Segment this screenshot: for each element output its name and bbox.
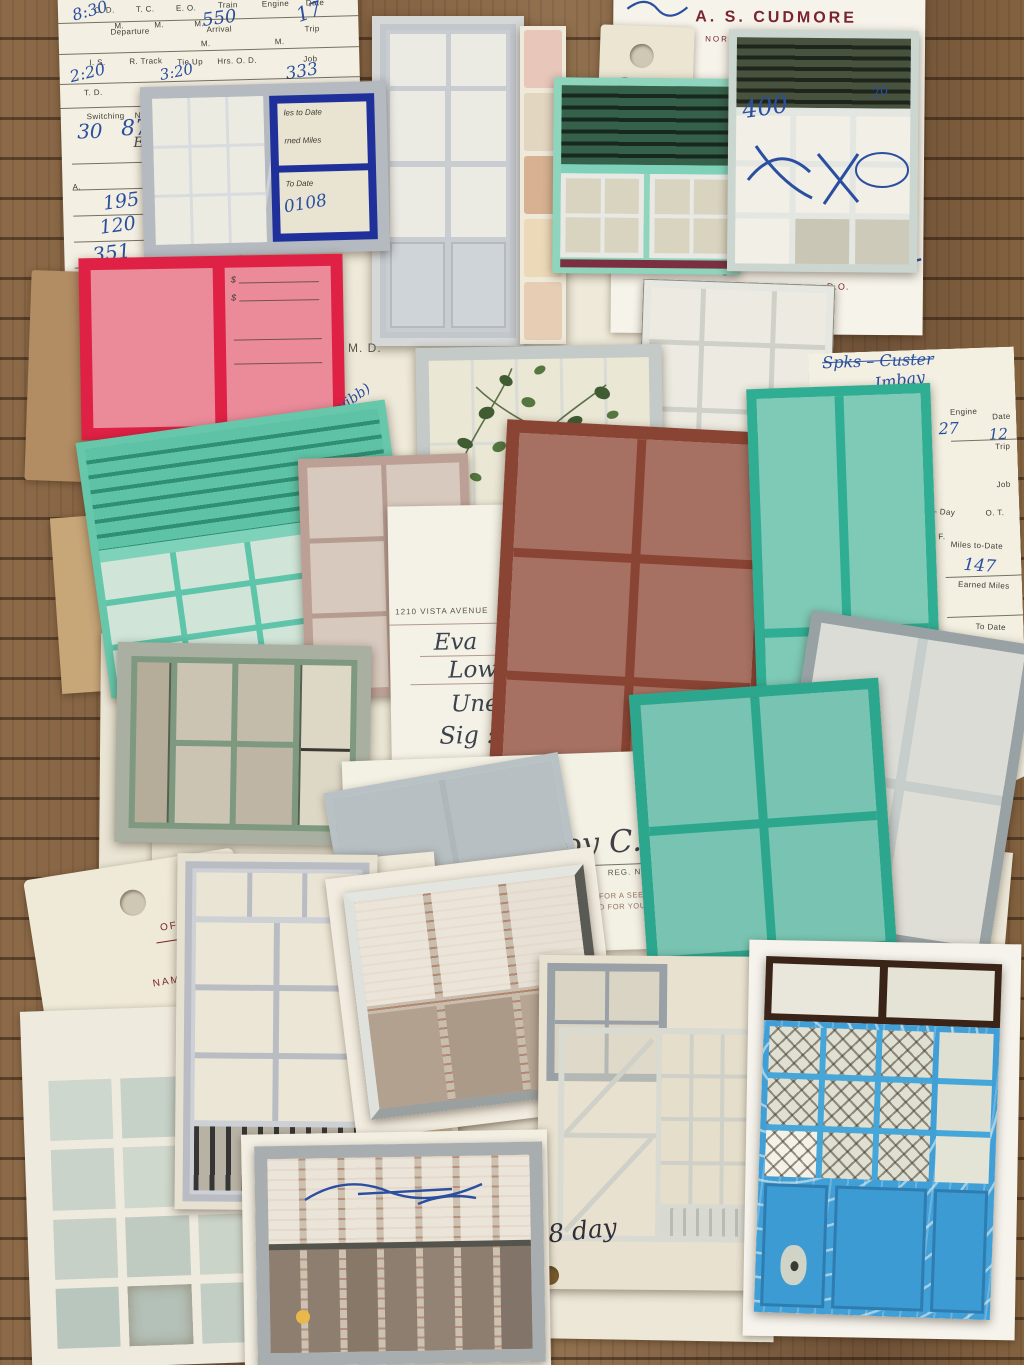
window-pane bbox=[451, 34, 507, 86]
window-pane bbox=[310, 541, 386, 614]
form-label: Engine bbox=[262, 0, 290, 9]
window-pane bbox=[430, 885, 511, 997]
window-pane bbox=[267, 1159, 302, 1354]
lattice-pane bbox=[766, 1078, 818, 1126]
handwritten-20: 20 bbox=[871, 84, 890, 100]
window-pane bbox=[191, 147, 227, 195]
window-pane bbox=[451, 167, 506, 237]
window-pane bbox=[661, 1121, 689, 1161]
rule-line bbox=[239, 281, 319, 283]
window-pane bbox=[795, 218, 849, 264]
window-pane bbox=[604, 179, 639, 214]
form-label: Trip bbox=[304, 25, 319, 33]
form-label: M. bbox=[275, 38, 285, 46]
form-label: Miles to-Date bbox=[951, 541, 1004, 551]
window-pane bbox=[252, 873, 303, 917]
rule-line bbox=[946, 574, 1022, 578]
rule-line bbox=[234, 338, 322, 341]
window-pane bbox=[514, 433, 637, 554]
lattice-pane bbox=[881, 1030, 933, 1078]
form-label: To Date bbox=[975, 623, 1006, 632]
form-label: Engine bbox=[950, 408, 978, 417]
green-shutter-window bbox=[552, 77, 742, 275]
lattice-pane bbox=[821, 1132, 873, 1180]
form-fragment: rned Miles bbox=[284, 137, 321, 146]
window-pane bbox=[278, 1059, 357, 1122]
address: 1210 VISTA AVENUE bbox=[395, 607, 488, 617]
marble-tile bbox=[51, 1148, 116, 1210]
window-pane bbox=[152, 98, 188, 146]
window-pane bbox=[229, 146, 265, 194]
window-pane bbox=[692, 1121, 720, 1161]
handwritten-400: 400 bbox=[741, 92, 790, 122]
punched-hole bbox=[118, 888, 148, 918]
roller-shutter bbox=[561, 85, 734, 166]
slat-panel bbox=[660, 1204, 751, 1237]
window-pane bbox=[195, 990, 274, 1053]
window-pane bbox=[228, 96, 264, 144]
form-label: Earned Miles bbox=[958, 581, 1010, 591]
window-pane bbox=[936, 1084, 992, 1132]
window-pane bbox=[390, 167, 445, 237]
handwritten-time: 8:30 bbox=[70, 0, 109, 24]
window-pane bbox=[661, 1034, 689, 1074]
form-label: A. bbox=[72, 183, 81, 191]
window-pane bbox=[155, 197, 191, 245]
transom bbox=[764, 956, 1002, 1028]
window-pane bbox=[693, 1078, 721, 1118]
handwritten-number: 195 bbox=[102, 190, 140, 214]
dollar-label: $ bbox=[231, 294, 236, 303]
window-pane bbox=[757, 396, 842, 628]
window-pane bbox=[451, 91, 506, 161]
handwritten-0108: 0108 bbox=[283, 192, 328, 216]
window-pane bbox=[693, 218, 728, 253]
window-pane bbox=[855, 219, 909, 265]
window-pane bbox=[444, 997, 524, 1100]
window-pane bbox=[655, 179, 690, 214]
rule-line bbox=[947, 614, 1023, 618]
window-pane bbox=[565, 217, 600, 252]
form-label: T. C. bbox=[136, 5, 155, 13]
window-pane: les to Date rned Miles bbox=[277, 101, 367, 165]
dollar-label: $ bbox=[231, 276, 236, 285]
window-pane bbox=[735, 218, 789, 264]
form-label: O. T. bbox=[985, 509, 1004, 518]
window-pane bbox=[650, 828, 768, 957]
window-pane bbox=[938, 1032, 994, 1080]
window-pane bbox=[705, 289, 772, 343]
marble-tile bbox=[56, 1286, 121, 1348]
lattice-pane bbox=[765, 1130, 817, 1178]
form-fragment: les to Date bbox=[284, 108, 322, 117]
lattice-pane bbox=[880, 1082, 932, 1130]
window-pane bbox=[934, 1136, 990, 1184]
lattice-pane bbox=[823, 1080, 875, 1128]
marble-tile bbox=[128, 1284, 193, 1346]
open-frame-half bbox=[563, 1033, 657, 1236]
window-pane bbox=[661, 1077, 689, 1117]
window-pane bbox=[759, 689, 877, 818]
yellow-dot-sticker bbox=[296, 1310, 310, 1324]
handwritten-number: 120 bbox=[99, 214, 137, 238]
door-lower-panels bbox=[390, 242, 506, 328]
window-pane bbox=[640, 439, 763, 560]
window-pane bbox=[390, 91, 445, 161]
window-pane bbox=[498, 1155, 533, 1350]
form-label: Arrival bbox=[206, 25, 232, 34]
brick-tile bbox=[524, 282, 562, 340]
letterhead-name: A. S. CUDMORE bbox=[695, 9, 857, 26]
window-pane bbox=[193, 196, 229, 244]
window-pane bbox=[566, 178, 601, 213]
rule-line bbox=[234, 362, 322, 365]
window-pane: To Date 0108 bbox=[279, 170, 369, 234]
window-pane bbox=[135, 662, 172, 823]
side-lights bbox=[934, 1032, 993, 1184]
form-label: M. bbox=[154, 21, 164, 29]
window-pane bbox=[768, 820, 886, 949]
punched-hole bbox=[629, 43, 654, 68]
door-body bbox=[754, 1020, 1000, 1320]
window-pane bbox=[153, 148, 189, 196]
door-glazing bbox=[390, 91, 506, 237]
door-panel bbox=[930, 1189, 988, 1314]
window-pane bbox=[390, 34, 446, 86]
window-pane bbox=[633, 563, 756, 684]
window-pane bbox=[882, 791, 1001, 948]
window-pane bbox=[231, 195, 267, 243]
lattice-pane bbox=[825, 1028, 877, 1076]
door-transom bbox=[390, 34, 506, 86]
window-pane bbox=[196, 872, 247, 916]
left-sash bbox=[152, 96, 267, 245]
window-pane bbox=[654, 218, 689, 253]
window-pane: $ $ bbox=[225, 266, 334, 426]
form-label: F. bbox=[938, 533, 945, 541]
window-pane bbox=[175, 542, 249, 590]
handwritten-8day: 8 day bbox=[547, 1214, 618, 1246]
handwritten-value: 2:20 bbox=[68, 61, 107, 85]
window-pane bbox=[609, 971, 659, 1020]
window-pane bbox=[176, 663, 233, 741]
window-pane bbox=[368, 1006, 448, 1109]
handwritten-value: 27 bbox=[938, 421, 959, 438]
form-label: Date bbox=[992, 413, 1011, 422]
form-label: Hrs. O. D. bbox=[217, 57, 257, 66]
window-pane bbox=[640, 698, 758, 827]
window-pane bbox=[237, 664, 294, 742]
window-pane bbox=[190, 97, 226, 145]
form-label: M. bbox=[201, 40, 211, 48]
casement-pair bbox=[560, 173, 733, 258]
lattice-glazing bbox=[765, 1026, 934, 1182]
white-door-photo bbox=[372, 16, 524, 346]
marble-tile bbox=[48, 1079, 113, 1141]
window-pane bbox=[906, 640, 1024, 797]
handwritten-date: 17 bbox=[293, 0, 324, 25]
marble-tile bbox=[53, 1217, 118, 1279]
window-sill bbox=[560, 259, 732, 269]
teal-four-pane-window bbox=[629, 678, 898, 969]
form-label: T. D. bbox=[84, 89, 103, 97]
window-pane bbox=[843, 393, 928, 625]
window-pane bbox=[604, 218, 639, 253]
photo-scene: O. D. T. C. E. O. Train Engine Date 8:30… bbox=[0, 0, 1024, 1365]
md-fragment: M. D. bbox=[348, 342, 382, 354]
window-pane bbox=[354, 894, 435, 1006]
transom-pane bbox=[886, 967, 995, 1021]
window-pane bbox=[507, 556, 630, 677]
ink-x-scribble bbox=[740, 132, 910, 222]
window-pane bbox=[660, 1164, 688, 1204]
form-fragment: To Date bbox=[285, 179, 313, 188]
glazed-half bbox=[655, 1034, 753, 1237]
door-panel bbox=[451, 242, 506, 328]
window-pane bbox=[194, 1058, 273, 1121]
marble-tile bbox=[125, 1215, 190, 1277]
door-panel bbox=[760, 1183, 828, 1308]
navy-sash: les to Date rned Miles To Date 0108 bbox=[269, 93, 378, 242]
window-pane bbox=[181, 586, 255, 634]
window-pane bbox=[649, 287, 701, 341]
glazing-bar bbox=[301, 748, 350, 752]
handwritten-value: 147 bbox=[963, 557, 997, 576]
window-pane bbox=[107, 597, 181, 645]
form-label: E. O. bbox=[176, 4, 196, 13]
window-pane bbox=[693, 1034, 721, 1074]
ink-scribble-arrow bbox=[300, 1168, 490, 1213]
white-door bbox=[380, 24, 516, 338]
window-pane bbox=[91, 268, 216, 428]
window-pane bbox=[100, 553, 174, 601]
form-label: Trip bbox=[995, 443, 1010, 452]
form-label: Job bbox=[996, 481, 1010, 489]
form-label: R. Track bbox=[129, 57, 162, 66]
form-label: Departure bbox=[110, 28, 149, 37]
window-pane bbox=[175, 746, 232, 824]
door-panel bbox=[390, 242, 445, 328]
window-pane bbox=[775, 291, 827, 345]
handwritten-value: 30 bbox=[77, 121, 103, 142]
rule-line bbox=[239, 299, 319, 301]
lattice-pane bbox=[878, 1134, 930, 1182]
window-pane bbox=[195, 922, 274, 985]
handwritten-value: 333 bbox=[284, 61, 319, 83]
window-pane bbox=[692, 1165, 720, 1205]
window-pane bbox=[307, 465, 383, 538]
window-cutout-navy-gray: les to Date rned Miles To Date 0108 bbox=[140, 81, 390, 257]
blue-door bbox=[754, 956, 1002, 1320]
window-pane bbox=[693, 180, 728, 215]
window-pane bbox=[236, 747, 293, 825]
zbrace-screen-door bbox=[557, 1027, 759, 1243]
door-panel bbox=[831, 1186, 927, 1312]
diagonal-braces bbox=[563, 1033, 657, 1236]
transom-pane bbox=[771, 963, 880, 1017]
patient-name: Eva bbox=[434, 631, 478, 655]
lattice-pane bbox=[768, 1026, 820, 1074]
form-label: M. bbox=[194, 20, 204, 28]
window-pane bbox=[555, 971, 605, 1020]
